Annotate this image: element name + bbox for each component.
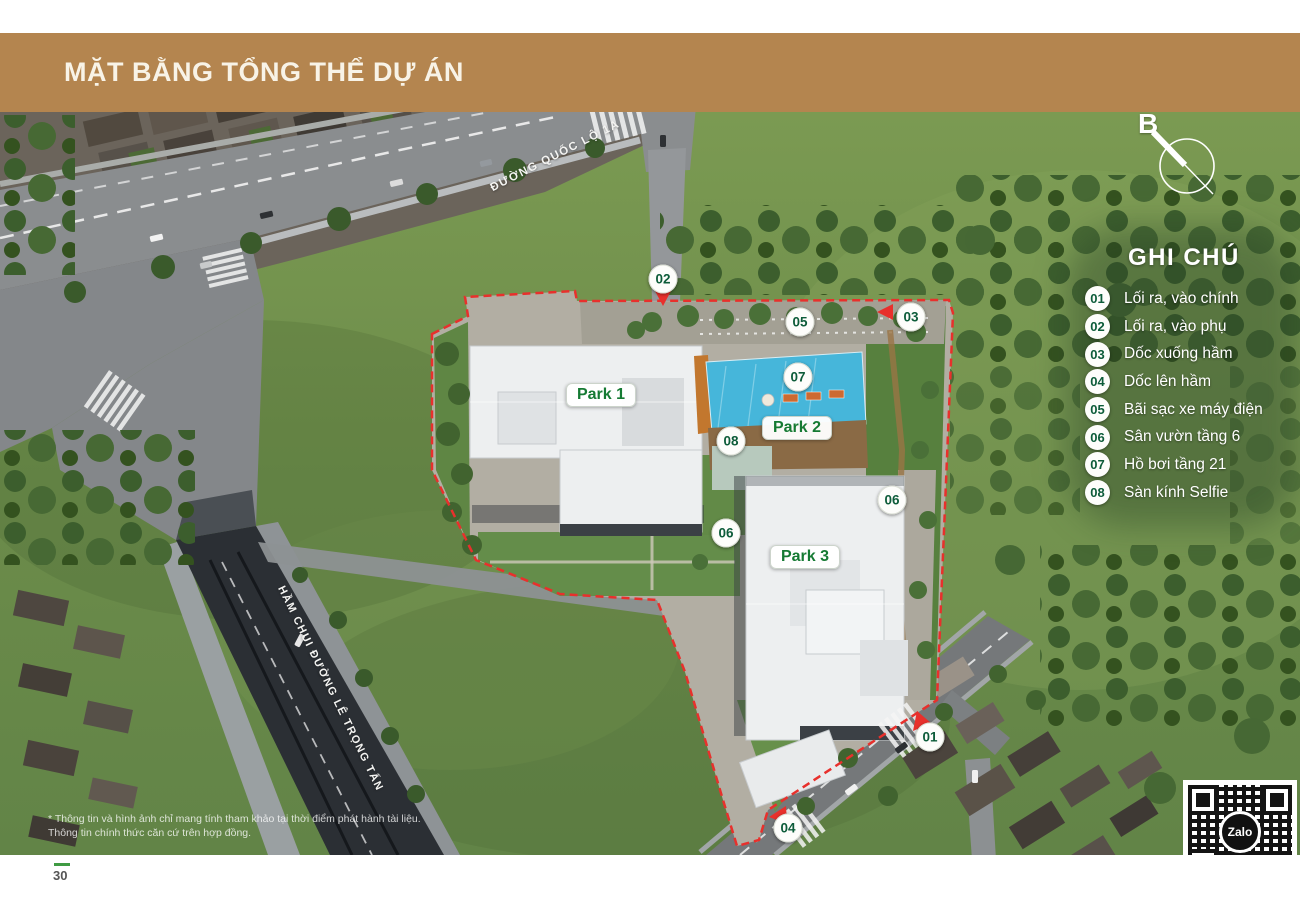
zalo-logo: Zalo [1219, 811, 1261, 853]
page-number-block: 30 [53, 863, 70, 883]
map-marker-07: 07 [784, 363, 813, 392]
legend-label: Bãi sạc xe máy điện [1124, 401, 1263, 419]
legend-badge: 07 [1085, 452, 1110, 477]
map-marker-02: 02 [649, 265, 678, 294]
disclaimer: * Thông tin và hình ảnh chỉ mang tính th… [48, 812, 421, 840]
marker-number: 08 [723, 434, 738, 449]
area-label-park-3: Park 3 [770, 545, 840, 569]
map-marker-06-east: 06 [878, 486, 907, 515]
compass-north-indicator: B [1128, 108, 1238, 208]
legend-label: Dốc lên hầm [1124, 373, 1211, 391]
legend-badge: 01 [1085, 286, 1110, 311]
legend-label: Sàn kính Selfie [1124, 484, 1228, 502]
area-label-park-1: Park 1 [566, 383, 636, 407]
legend-label: Hồ bơi tầng 21 [1124, 456, 1226, 474]
legend-title: GHI CHÚ [1128, 244, 1300, 272]
page-number: 30 [53, 868, 70, 883]
legend-item-04: 04 Dốc lên hầm [1085, 368, 1300, 396]
page-number-accent [54, 863, 70, 866]
legend-item-05: 05 Bãi sạc xe máy điện [1085, 396, 1300, 424]
legend-label: Sân vườn tầng 6 [1124, 428, 1240, 446]
legend-label: Lối ra, vào phụ [1124, 318, 1227, 336]
marker-number: 03 [903, 310, 918, 325]
qr-finder-top-right [1262, 785, 1292, 815]
footer-strip: 30 [0, 855, 1300, 899]
legend-panel: GHI CHÚ 01 Lối ra, vào chính 02 Lối ra, … [1085, 244, 1300, 507]
area-label-park-2: Park 2 [762, 416, 832, 440]
legend-badge: 04 [1085, 369, 1110, 394]
legend-item-02: 02 Lối ra, vào phụ [1085, 313, 1300, 341]
brochure-page: MẶT BẰNG TỔNG THỂ DỰ ÁN B ĐƯỜNG QUỐC LỘ … [0, 0, 1300, 899]
header-band: MẶT BẰNG TỔNG THỂ DỰ ÁN [0, 33, 1300, 112]
legend-badge: 08 [1085, 480, 1110, 505]
marker-number: 05 [792, 315, 807, 330]
legend-item-08: 08 Sàn kính Selfie [1085, 479, 1300, 507]
marker-number: 06 [718, 526, 733, 541]
disclaimer-line-2: Thông tin chính thức căn cứ trên hợp đồn… [48, 826, 421, 840]
marker-number: 06 [884, 493, 899, 508]
compass-dial-icon [1128, 108, 1238, 208]
map-marker-06-west: 06 [712, 519, 741, 548]
marker-number: 07 [790, 370, 805, 385]
map-marker-04: 04 [774, 814, 803, 843]
map-marker-01: 01 [916, 723, 945, 752]
map-marker-03: 03 [897, 303, 926, 332]
disclaimer-line-1: * Thông tin và hình ảnh chỉ mang tính th… [48, 812, 421, 826]
marker-number: 01 [922, 730, 937, 745]
legend-badge: 03 [1085, 342, 1110, 367]
legend-label: Lối ra, vào chính [1124, 290, 1239, 308]
legend-badge: 05 [1085, 397, 1110, 422]
legend-item-01: 01 Lối ra, vào chính [1085, 285, 1300, 313]
legend-item-06: 06 Sân vườn tầng 6 [1085, 423, 1300, 451]
legend-item-07: 07 Hồ bơi tầng 21 [1085, 451, 1300, 479]
marker-number: 04 [780, 821, 795, 836]
legend-badge: 02 [1085, 314, 1110, 339]
map-marker-05: 05 [786, 308, 815, 337]
legend-badge: 06 [1085, 425, 1110, 450]
page-title: MẶT BẰNG TỔNG THỂ DỰ ÁN [64, 57, 464, 88]
legend-label: Dốc xuống hầm [1124, 345, 1233, 363]
map-marker-08: 08 [717, 427, 746, 456]
qr-finder-top-left [1188, 785, 1218, 815]
marker-number: 02 [655, 272, 670, 287]
legend-item-03: 03 Dốc xuống hầm [1085, 340, 1300, 368]
